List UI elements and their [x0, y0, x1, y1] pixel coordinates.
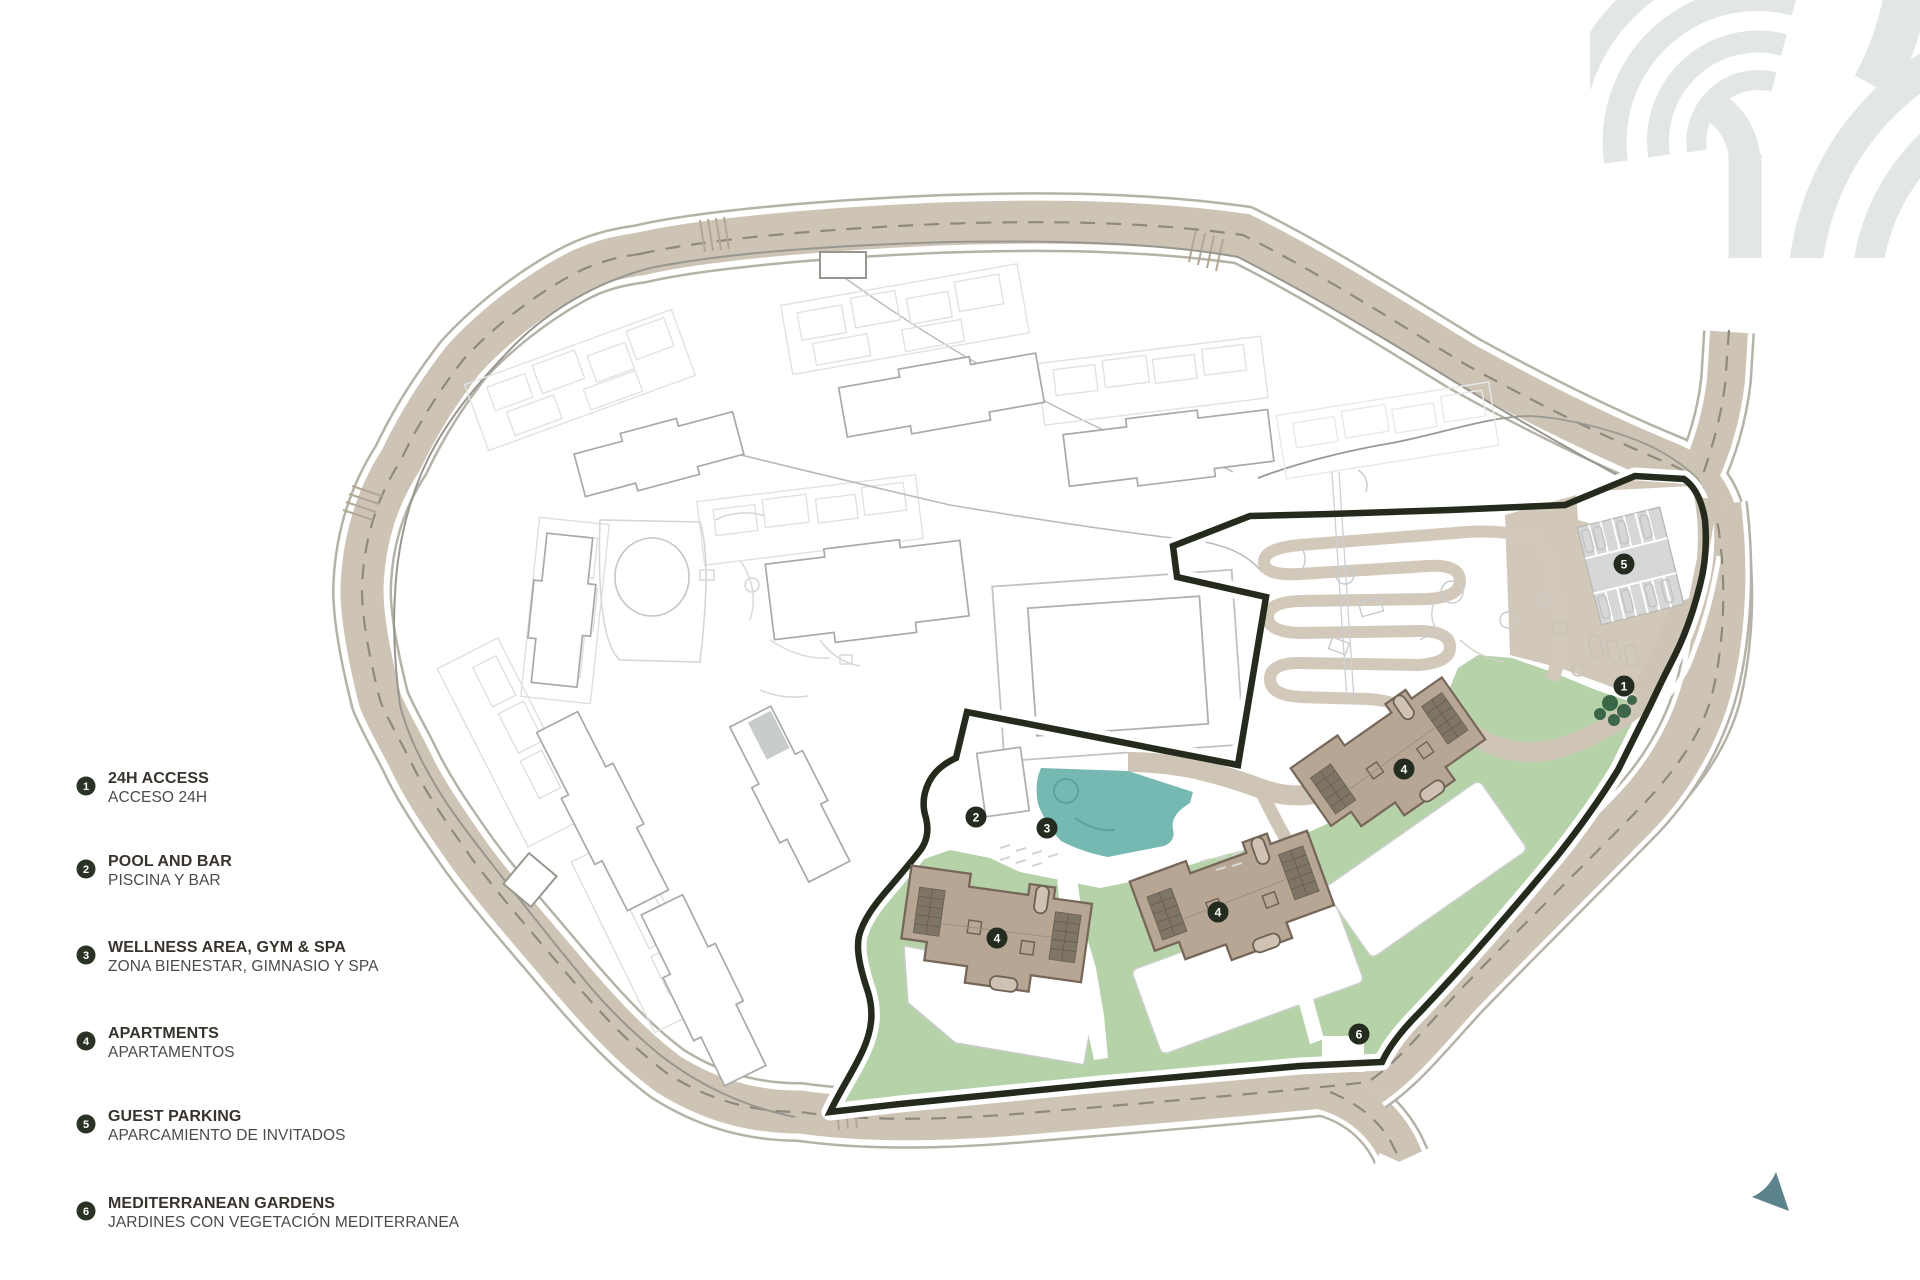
svg-text:6: 6: [1356, 1028, 1363, 1042]
svg-text:MEDITERRANEAN GARDENS: MEDITERRANEAN GARDENS: [108, 1195, 335, 1212]
svg-text:ZONA BIENESTAR, GIMNASIO Y SPA: ZONA BIENESTAR, GIMNASIO Y SPA: [108, 958, 379, 975]
svg-text:4: 4: [1401, 763, 1408, 777]
svg-text:1: 1: [83, 781, 89, 793]
svg-text:5: 5: [1621, 558, 1628, 572]
svg-text:ACCESO 24H: ACCESO 24H: [108, 789, 207, 806]
svg-text:4: 4: [994, 932, 1001, 946]
svg-text:4: 4: [83, 1036, 90, 1048]
svg-text:APARTMENTS: APARTMENTS: [108, 1025, 219, 1042]
svg-text:5: 5: [83, 1119, 89, 1131]
svg-text:1: 1: [1621, 680, 1628, 694]
svg-text:24H ACCESS: 24H ACCESS: [108, 770, 209, 787]
svg-text:6: 6: [83, 1206, 89, 1218]
svg-text:4: 4: [1215, 906, 1222, 920]
svg-text:3: 3: [83, 950, 89, 962]
svg-text:WELLNESS AREA, GYM & SPA: WELLNESS AREA, GYM & SPA: [108, 939, 346, 956]
svg-text:PISCINA Y BAR: PISCINA Y BAR: [108, 872, 221, 889]
svg-text:JARDINES CON VEGETACIÓN MEDITE: JARDINES CON VEGETACIÓN MEDITERRANEA: [108, 1214, 460, 1231]
svg-text:2: 2: [973, 811, 980, 825]
svg-text:GUEST PARKING: GUEST PARKING: [108, 1108, 241, 1125]
svg-text:2: 2: [83, 864, 89, 876]
svg-text:3: 3: [1044, 822, 1051, 836]
svg-text:APARTAMENTOS: APARTAMENTOS: [108, 1044, 235, 1061]
svg-text:APARCAMIENTO DE INVITADOS: APARCAMIENTO DE INVITADOS: [108, 1127, 346, 1144]
svg-text:POOL AND BAR: POOL AND BAR: [108, 853, 232, 870]
